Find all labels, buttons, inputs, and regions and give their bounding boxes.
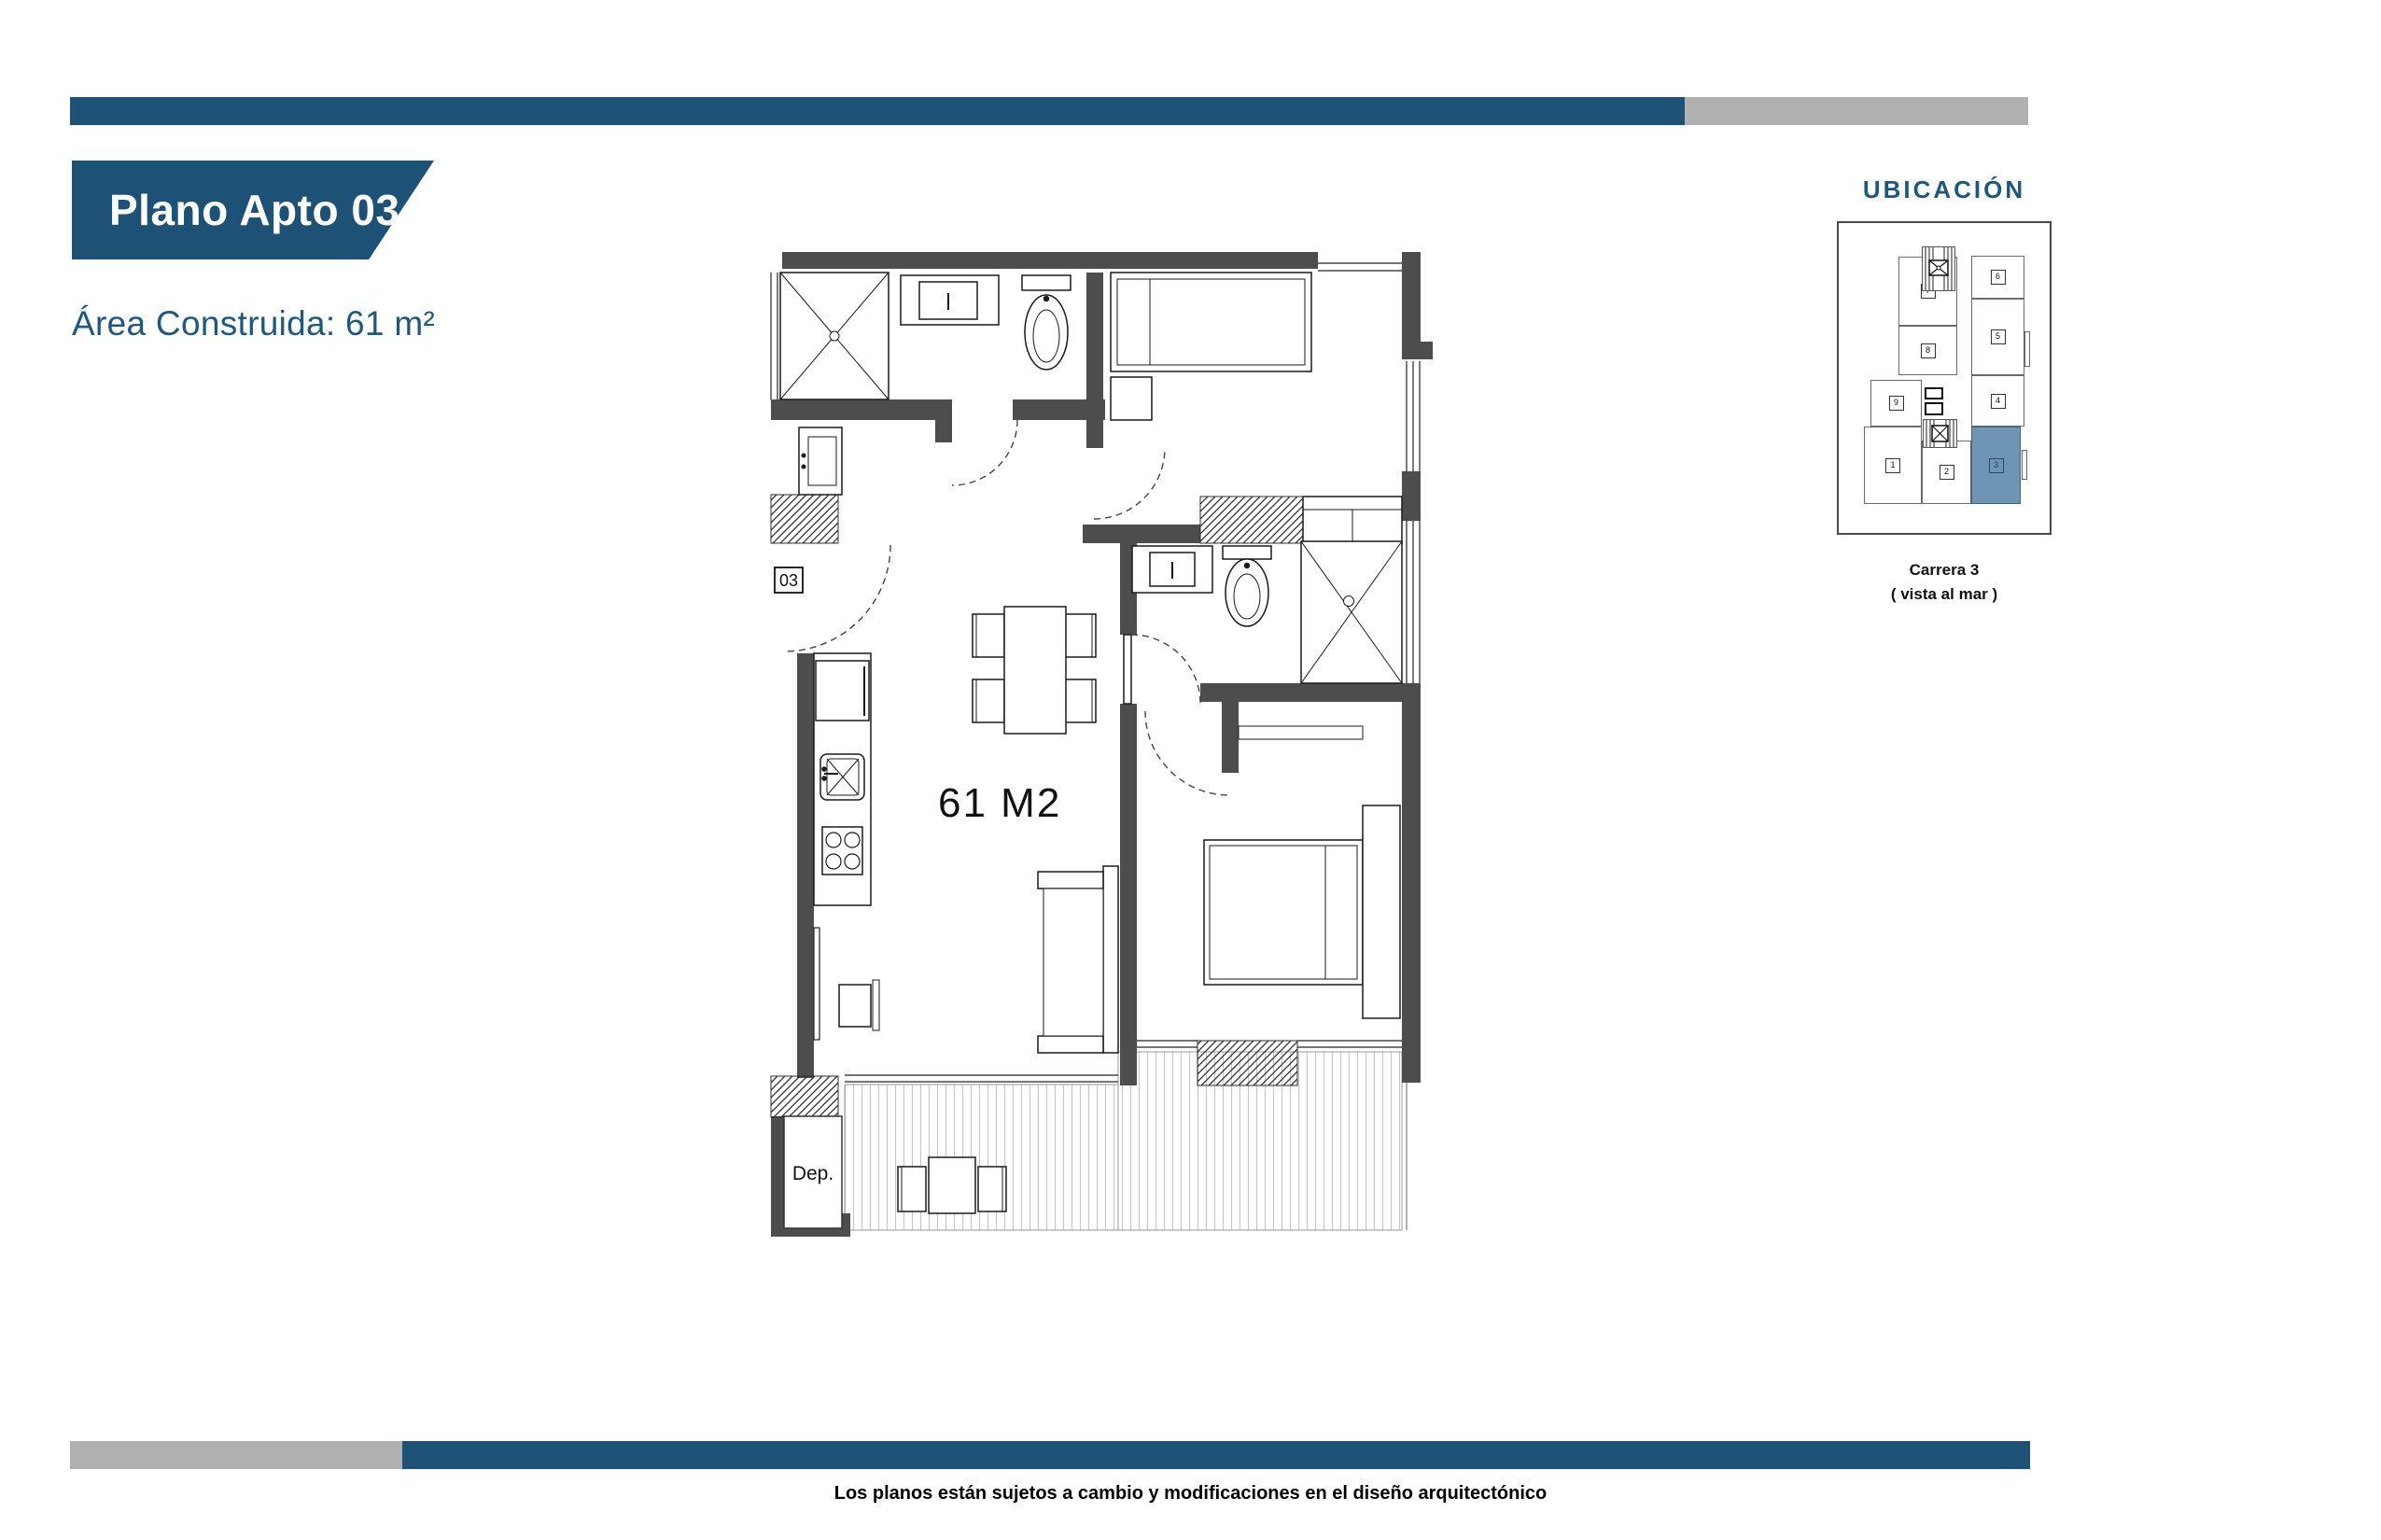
sink-symbol [901, 275, 999, 325]
sofa-symbol [1038, 866, 1118, 1053]
desk-symbol [839, 980, 879, 1030]
map-unit-1: 1 [1864, 427, 1922, 504]
bottom-bar-gray-segment [70, 1441, 402, 1469]
shower-symbol [1301, 541, 1402, 683]
location-map: 7 8 9 1 2 6 5 4 3 [1837, 221, 2052, 535]
kitchen-sink-symbol [820, 754, 864, 800]
headboard-panel [1363, 805, 1400, 1018]
toilet-symbol [1223, 546, 1271, 626]
location-street: Carrera 3 [1837, 558, 2052, 582]
dining-table-symbol [973, 607, 1096, 734]
top-bar-blue-segment [70, 97, 1685, 125]
facade-window-tab [2024, 331, 2030, 367]
toilet-symbol [1022, 275, 1071, 370]
facade-window-tab [2022, 450, 2027, 480]
fridge-symbol [816, 661, 869, 721]
floor-plan-drawing: Dep. 03 61 M2 [765, 245, 1433, 1253]
bed-symbol [1204, 840, 1363, 985]
stairs-icon [1923, 419, 1957, 448]
bottom-bar-blue-segment [402, 1441, 2030, 1469]
elevator-icon [1925, 402, 1943, 415]
oven-symbol [799, 427, 842, 495]
location-view: ( vista al mar ) [1837, 582, 2052, 607]
map-unit-5: 5 [1971, 299, 2024, 375]
disclaimer-text: Los planos están sujetos a cambio y modi… [0, 1483, 2381, 1505]
built-area-label: Área Construida: 61 m² [72, 304, 435, 343]
top-bar-gray-segment [1685, 97, 2028, 125]
plan-area-text: 61 M2 [938, 780, 1061, 826]
deposit-room: Dep. [784, 1116, 842, 1228]
location-caption: Carrera 3 ( vista al mar ) [1837, 558, 2052, 607]
sink-symbol [1132, 546, 1212, 593]
wardrobe-symbol [1303, 497, 1402, 543]
map-unit-4: 4 [1971, 375, 2024, 427]
bathroom1-fixtures [780, 273, 1071, 399]
top-accent-bar [70, 97, 2028, 125]
map-unit-9: 9 [1870, 380, 1922, 427]
plan-title: Plano Apto 03 [72, 161, 434, 259]
shower-symbol [780, 273, 889, 399]
nightstand-symbol [1111, 377, 1152, 420]
elevator-icon [1925, 387, 1943, 399]
closet-shelf [1239, 726, 1363, 739]
bed-symbol [1111, 273, 1311, 371]
apartment-number-tag: 03 [775, 567, 803, 593]
plan-title-banner: Plano Apto 03 [72, 161, 434, 259]
map-unit-8: 8 [1898, 326, 1957, 375]
stairs-icon [1922, 246, 1955, 291]
svg-text:03: 03 [779, 571, 798, 590]
map-unit-3-highlighted: 3 [1971, 427, 2021, 504]
deposit-label: Dep. [792, 1163, 833, 1184]
bottom-accent-bar [70, 1441, 2030, 1469]
door-leaf [1124, 635, 1131, 704]
location-title: UBICACIÓN [1837, 175, 2052, 204]
stove-symbol [822, 827, 862, 875]
map-unit-6: 6 [1971, 256, 2024, 299]
bathroom2-fixtures [1124, 541, 1402, 704]
map-unit-2: 2 [1922, 441, 1971, 504]
